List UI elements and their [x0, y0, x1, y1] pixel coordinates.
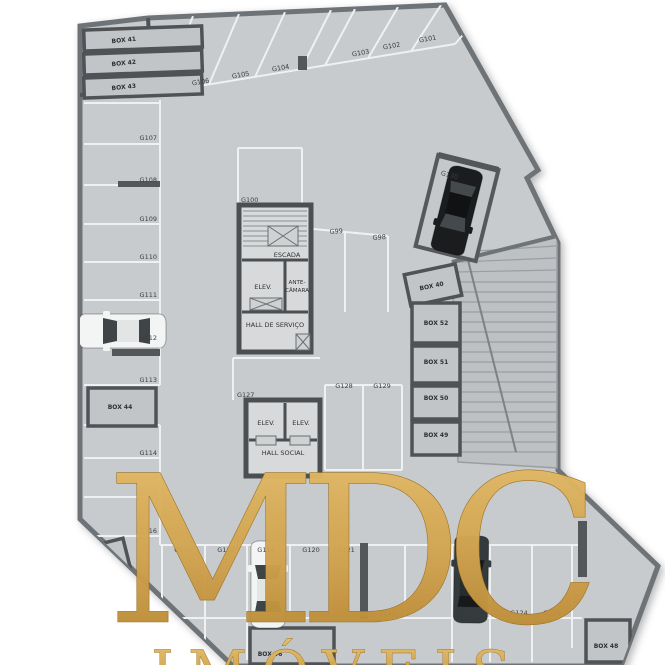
- ante-camara-label-2: CÂMARA: [285, 287, 309, 294]
- ante-camara-label-1: ANTE-: [289, 280, 306, 286]
- stall-label: G128: [335, 382, 352, 390]
- box-room-42: [84, 50, 203, 75]
- stair-core: ESCADA ELEV. ANTE- CÂMARA HALL DE SERVIÇ…: [239, 205, 311, 352]
- elev2-label: ELEV.: [292, 419, 310, 427]
- elev-label: ELEV.: [254, 283, 272, 291]
- floorplan-canvas: ESCADA ELEV. ANTE- CÂMARA HALL DE SERVIÇ…: [0, 0, 665, 665]
- box-room-43: [84, 74, 203, 98]
- escada-label: ESCADA: [274, 251, 301, 259]
- box-label: BOX 50: [424, 395, 449, 402]
- stall-label: G108: [140, 176, 157, 184]
- stall-label: G111: [140, 291, 157, 299]
- watermark-subtitle: IMÓVEIS: [151, 638, 525, 665]
- hall-servico-label: HALL DE SERVIÇO: [246, 321, 304, 329]
- watermark-title: MDC: [106, 433, 589, 665]
- stall-label: G109: [140, 215, 157, 223]
- box-room-41: [84, 26, 203, 51]
- stall-label: G107: [140, 134, 157, 142]
- stall-label: G129: [373, 382, 390, 390]
- box-label: BOX 52: [424, 320, 449, 327]
- box-label: BOX 44: [108, 404, 133, 411]
- stall-label: G110: [140, 253, 157, 261]
- stall-label: G113: [140, 376, 157, 384]
- stall-label: G99: [329, 227, 343, 236]
- white-car-left: [79, 311, 166, 351]
- stall-label: G98: [372, 233, 386, 242]
- box-label: BOX 48: [594, 643, 619, 650]
- stall-label: G127: [237, 391, 254, 399]
- stall-label: G112: [140, 334, 157, 342]
- box-room-50: [412, 386, 460, 419]
- box-label: BOX 51: [424, 359, 449, 366]
- elev1-label: ELEV.: [257, 419, 275, 427]
- stall-label: G100: [241, 196, 258, 204]
- watermark: MDC IMÓVEIS: [106, 433, 589, 665]
- box-room-48: [586, 620, 630, 662]
